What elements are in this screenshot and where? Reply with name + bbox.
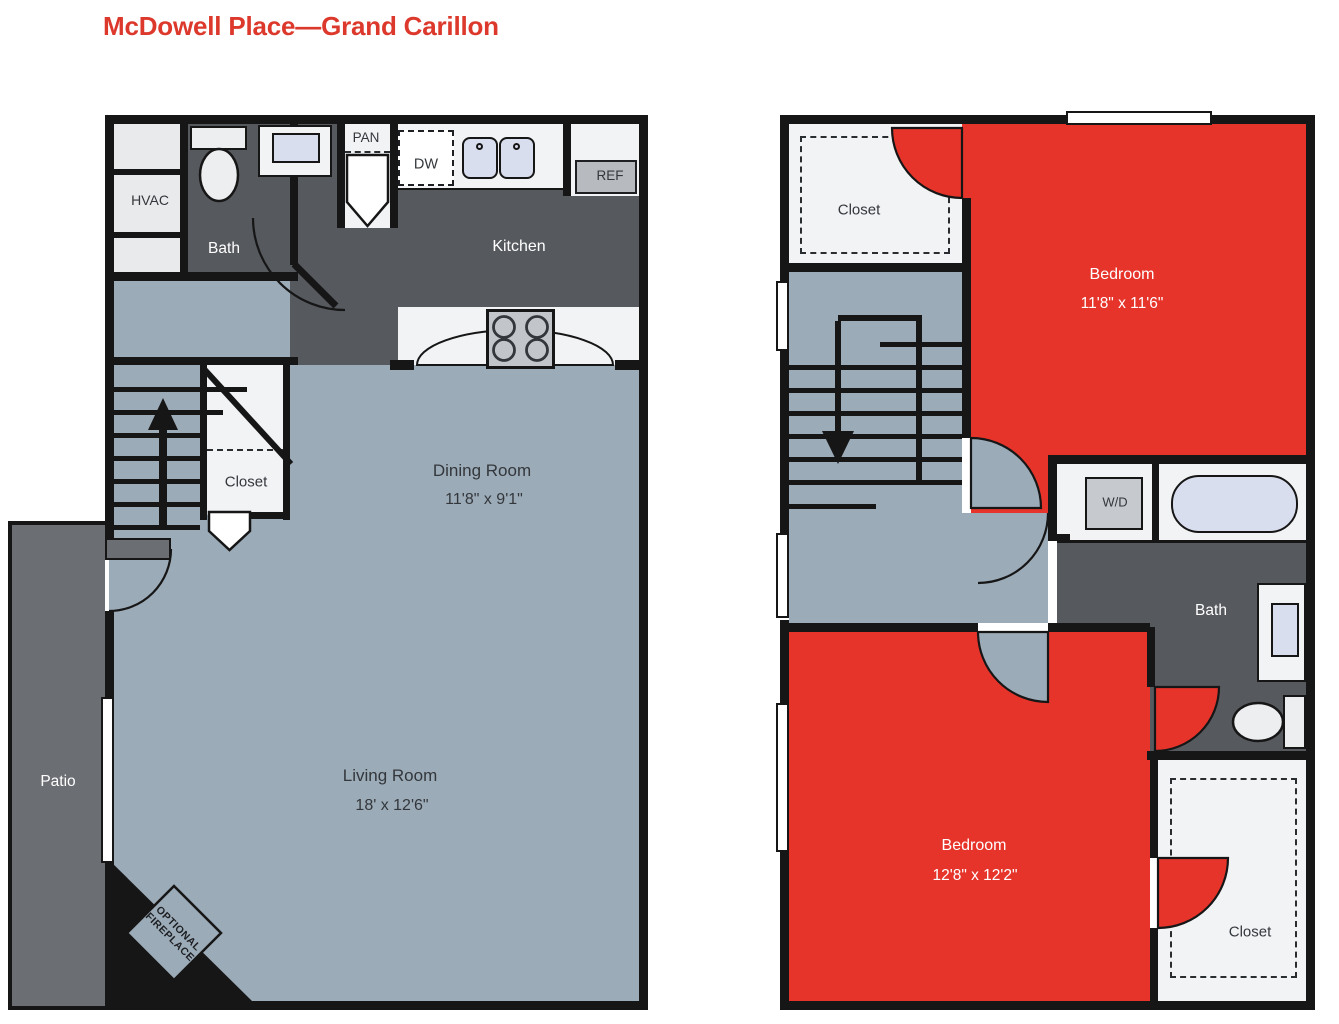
wall [105,357,298,365]
stair-tread [109,387,200,392]
wall [789,623,978,632]
patio-floor [12,525,105,1006]
wall [180,115,188,281]
upper-closet-dashed-outline [800,136,950,254]
stair-closet-label: Closet [225,473,268,490]
wall [780,852,789,1010]
wall [780,115,1068,124]
dishwasher-label: DW [414,157,438,174]
patio-edge [8,1006,109,1010]
patio-door-leaf [105,538,171,560]
wall [1210,115,1315,124]
door-swing [1155,687,1219,751]
stair-tread [789,457,962,462]
faucet-dot [476,143,483,150]
vanity-sink [1271,603,1299,657]
dining-room-dims: 11'8" x 9'1" [445,491,523,509]
wall [962,198,971,438]
window [1066,111,1212,125]
faucet-dot [513,143,520,150]
bedroom-bottom-dims: 12'8" x 12'2" [932,867,1017,885]
bath-label: Bath [208,240,240,258]
toilet-bowl [1233,703,1283,741]
window [776,533,789,618]
wall [105,115,114,538]
wall [105,169,180,175]
floor-plan-canvas: McDowell Place—Grand Carillon [0,0,1339,1024]
wall [1048,455,1306,464]
wall [250,512,290,519]
stair-rail [916,318,922,480]
wall [105,863,114,1010]
wall [615,360,639,370]
stair-tread [109,456,200,461]
wall [1048,623,1150,632]
wall [105,272,298,281]
stair-tread [789,365,962,370]
stair-tread [789,480,962,485]
stair-tread [207,387,247,392]
stair-tread [109,525,200,530]
living-room-label: Living Room [343,766,438,786]
wall [1306,115,1315,1010]
wall [789,263,962,272]
page-title: McDowell Place—Grand Carillon [103,11,499,42]
counter-edge [1057,540,1306,543]
stair-tread [789,411,962,416]
wall [1150,760,1158,858]
pantry-label: PAN [353,130,380,146]
wall [105,232,180,238]
wall [1152,464,1159,541]
bedroom-top-dims: 11'8" x 11'6" [1081,295,1164,313]
wall [639,115,648,1010]
hallway-floor [789,513,1048,623]
wall [337,115,345,228]
wall [1150,928,1158,1010]
wall [283,365,290,520]
bathtub-fixture [1171,475,1298,533]
stair-tread [207,410,223,415]
wall [105,611,114,697]
patio-label: Patio [40,773,75,791]
lower-closet-label: Closet [1229,923,1272,940]
hvac-label: HVAC [131,192,169,208]
refrigerator-label: REF [597,168,624,184]
pantry-shelf-line [345,151,390,153]
wall [390,115,398,228]
stair-tread [789,388,962,393]
wall [780,1001,1315,1010]
living-room-dims: 18' x 12'6" [355,797,428,815]
dining-room-label: Dining Room [433,461,531,481]
stair-tread [109,433,200,438]
stair-landing-floor [105,281,290,357]
washer-dryer-label: W/D [1102,496,1127,511]
wall [1048,534,1070,541]
window [776,703,789,852]
stairs-up-arrow-shaft [159,424,167,528]
kitchen-label: Kitchen [492,238,545,256]
stair-tread [789,504,876,509]
window [776,281,789,351]
bedroom-bottom-label: Bedroom [942,837,1007,855]
toilet-tank [1283,695,1306,749]
wall [105,1001,648,1010]
window [101,697,114,863]
wall [1048,464,1057,541]
stair-tread [789,434,962,439]
door-swing [971,438,1041,508]
wall [780,115,789,281]
wall [563,115,571,196]
stair-tread [109,502,200,507]
stair-tread [109,410,200,415]
wall [1147,627,1155,687]
stove-cooktop [486,309,555,369]
lower-closet-dashed-outline [1170,778,1297,978]
closet-shelf-line [207,449,283,451]
stairs-down-arrow-shaft [835,321,841,433]
bedroom-bottom-floor [789,632,1150,1001]
wall [780,620,789,705]
patio-edge [8,521,12,1010]
patio-edge [8,521,105,525]
wall [390,360,414,370]
bath-upper-label: Bath [1195,602,1227,620]
counter-edge [398,188,563,190]
upper-closet-label: Closet [838,201,881,218]
wall [1147,751,1306,760]
stair-tread [109,479,200,484]
bedroom-top-label: Bedroom [1090,266,1155,284]
wall [200,365,207,520]
vanity-sink [272,133,320,163]
stair-rail [838,315,922,321]
wall [780,351,789,535]
toilet-tank [190,126,247,150]
